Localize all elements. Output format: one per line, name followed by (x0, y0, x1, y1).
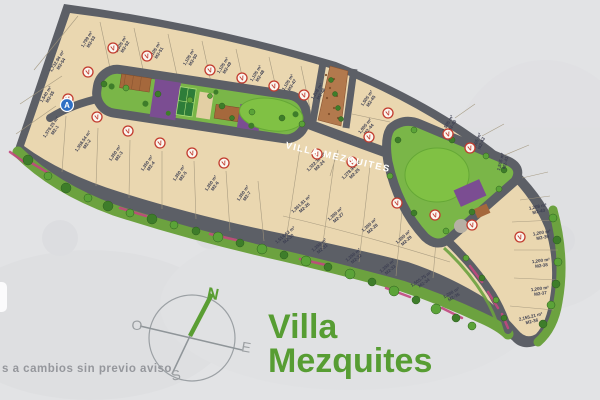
entrance-marker-letter: A (64, 101, 70, 110)
tree-icon (483, 153, 489, 159)
project-title-line2: Mezquites (268, 342, 432, 380)
sold-badge: V (123, 126, 133, 136)
tree-icon (553, 236, 561, 244)
tree-icon (412, 296, 420, 304)
tree-icon (192, 227, 200, 235)
tree-icon (463, 255, 469, 261)
sold-badge: V (205, 65, 215, 75)
sold-badge: V (83, 67, 93, 77)
tree-icon (493, 297, 499, 303)
sold-badge: V (237, 73, 247, 83)
tree-icon (336, 106, 341, 111)
site-plan-page: 1,799 m²M2-531,505 m²M2-521,105 m²M2-511… (0, 0, 600, 400)
tree-icon (155, 91, 161, 97)
sold-badge: V (299, 90, 309, 100)
tree-icon (230, 116, 235, 121)
tree-icon (452, 314, 460, 322)
tree-icon (554, 258, 562, 266)
tree-icon (249, 109, 255, 115)
sold-badge: V (443, 129, 453, 139)
sold-badge: V (155, 138, 165, 148)
tree-icon (257, 244, 267, 254)
sold-badge: V (515, 232, 525, 242)
sold-badge: V (383, 108, 393, 118)
compass-letter-o: O (132, 317, 143, 333)
tree-icon (333, 92, 338, 97)
tree-icon (339, 117, 344, 122)
tree-icon (389, 286, 399, 296)
tree-icon (61, 183, 71, 193)
tree-icon (123, 85, 129, 91)
tree-icon (468, 322, 476, 330)
sold-badge: V (392, 198, 402, 208)
tree-icon (496, 186, 502, 192)
sold-badge: V (364, 132, 374, 142)
tree-icon (552, 280, 560, 288)
tree-icon (236, 239, 244, 247)
project-title-line1: Villa (268, 308, 338, 346)
tree-icon (431, 304, 441, 314)
tree-icon (23, 155, 33, 165)
east-plaza (454, 219, 468, 233)
tree-icon (84, 194, 92, 202)
sold-badge: V (108, 43, 118, 53)
sold-badge: V (269, 81, 279, 91)
sold-badge: V (219, 158, 229, 168)
tree-icon (539, 320, 547, 328)
tree-icon (170, 221, 178, 229)
sold-badge: V (92, 112, 102, 122)
site-plan-svg: 1,799 m²M2-531,505 m²M2-521,105 m²M2-511… (0, 0, 600, 400)
sold-badge: V (187, 148, 197, 158)
tree-icon (547, 301, 555, 309)
tree-icon (219, 103, 225, 109)
tree-icon (411, 210, 417, 216)
tree-icon (301, 256, 311, 266)
sold-badge: V (142, 51, 152, 61)
tree-icon (479, 275, 485, 281)
tree-icon (411, 127, 417, 133)
sold-badge: V (465, 143, 475, 153)
tree-icon (324, 263, 332, 271)
partial-logo (0, 282, 7, 312)
tree-icon (443, 228, 449, 234)
sold-badge: V (430, 210, 440, 220)
tree-icon (126, 209, 134, 217)
disclaimer-text: s a cambios sin previo aviso (2, 363, 172, 375)
tree-icon (345, 269, 355, 279)
tree-icon (213, 232, 223, 242)
tree-icon (368, 278, 376, 286)
tree-icon (395, 137, 401, 143)
tree-icon (501, 315, 507, 321)
sold-badge: V (467, 220, 477, 230)
entrance-marker: A (61, 99, 74, 112)
tree-icon (208, 94, 213, 99)
tree-icon (187, 97, 193, 103)
tree-icon (44, 172, 52, 180)
tree-icon (103, 201, 113, 211)
tree-icon (469, 209, 475, 215)
tree-icon (147, 214, 157, 224)
tree-icon (549, 214, 557, 222)
tree-icon (299, 121, 305, 127)
tree-icon (279, 115, 285, 121)
tree-icon (329, 78, 334, 83)
tree-icon (101, 81, 107, 87)
tree-icon (280, 251, 288, 259)
